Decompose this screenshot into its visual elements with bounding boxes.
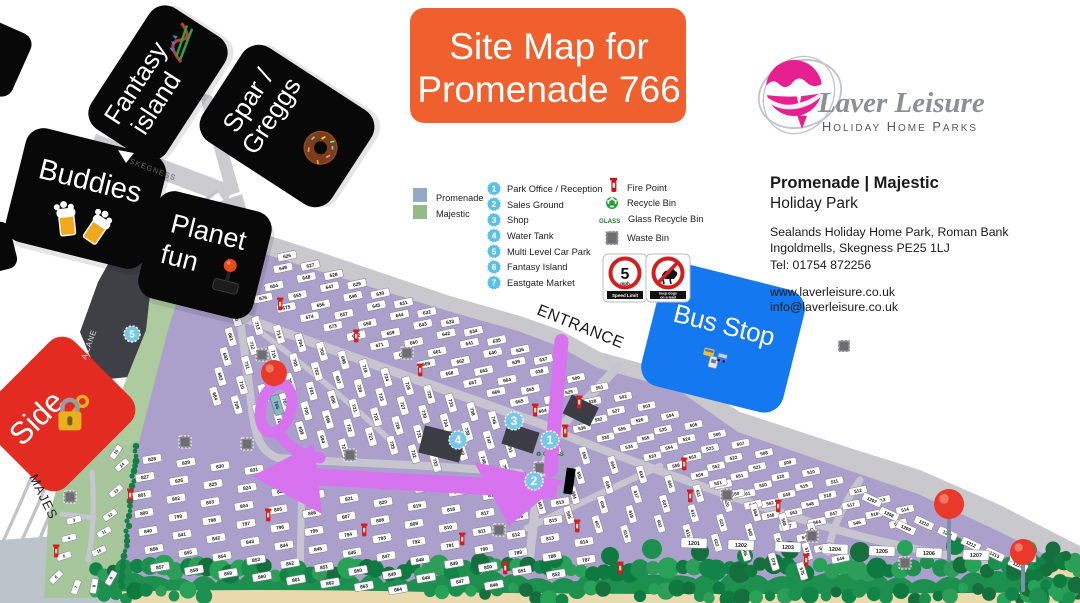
svg-text:4: 4 [492,231,497,241]
svg-text:Holiday Park: Holiday Park [770,195,858,212]
svg-text:Glass Recycle Bin: Glass Recycle Bin [628,214,703,224]
svg-text:Waste Bin: Waste Bin [627,233,669,243]
svg-text:Laver Leisure: Laver Leisure [817,87,985,119]
svg-text:3: 3 [511,414,518,428]
svg-text:Ingoldmells, Skegness PE25 1LJ: Ingoldmells, Skegness PE25 1LJ [770,241,950,255]
svg-text:2: 2 [531,474,538,488]
svg-text:www.laverleisure.co.uk: www.laverleisure.co.uk [769,285,896,299]
svg-text:mph: mph [620,281,630,286]
svg-text:Site Map for: Site Map for [449,26,648,67]
svg-text:Multi Level Car Park: Multi Level Car Park [507,247,591,257]
svg-text:Park Office / Reception: Park Office / Reception [507,184,602,194]
svg-text:3: 3 [492,215,497,225]
svg-text:1: 1 [492,184,497,194]
svg-text:Recycle Bin: Recycle Bin [627,198,676,208]
svg-text:1205: 1205 [876,549,888,555]
svg-text:7: 7 [492,278,497,288]
svg-text:Sales Ground: Sales Ground [507,200,564,210]
svg-text:1203: 1203 [782,545,794,551]
svg-text:Sealands Holiday Home Park, Ro: Sealands Holiday Home Park, Roman Bank [770,225,1009,239]
svg-text:Promenade 766: Promenade 766 [417,69,680,110]
svg-text:Shop: Shop [507,215,529,225]
svg-text:Fire Point: Fire Point [627,183,667,193]
svg-text:Tel: 01754 872256: Tel: 01754 872256 [770,258,871,272]
svg-text:1206: 1206 [923,551,935,557]
svg-text:Promenade: Promenade [436,193,484,203]
svg-text:2: 2 [492,199,497,209]
svg-text:Eastgate Market: Eastgate Market [507,278,575,288]
svg-text:4: 4 [455,433,462,447]
svg-text:5: 5 [492,246,497,256]
svg-text:Fantasy Island: Fantasy Island [507,262,567,272]
svg-text:1204: 1204 [829,547,841,553]
svg-text:1: 1 [547,433,554,447]
svg-text:5: 5 [129,329,135,340]
svg-text:Promenade | Majestic: Promenade | Majestic [770,174,939,192]
svg-text:1201: 1201 [688,541,700,547]
svg-text:GLASS: GLASS [599,218,620,225]
svg-text:on a lead: on a lead [660,296,676,300]
svg-text:6: 6 [492,262,497,272]
svg-text:Speed Limit: Speed Limit [612,293,639,298]
svg-text:info@laverleisure.co.uk: info@laverleisure.co.uk [770,300,899,314]
svg-text:Water Tank: Water Tank [507,231,554,241]
svg-text:Majestic: Majestic [436,209,470,219]
svg-text:1202: 1202 [735,543,747,549]
svg-text:1207: 1207 [970,553,982,559]
